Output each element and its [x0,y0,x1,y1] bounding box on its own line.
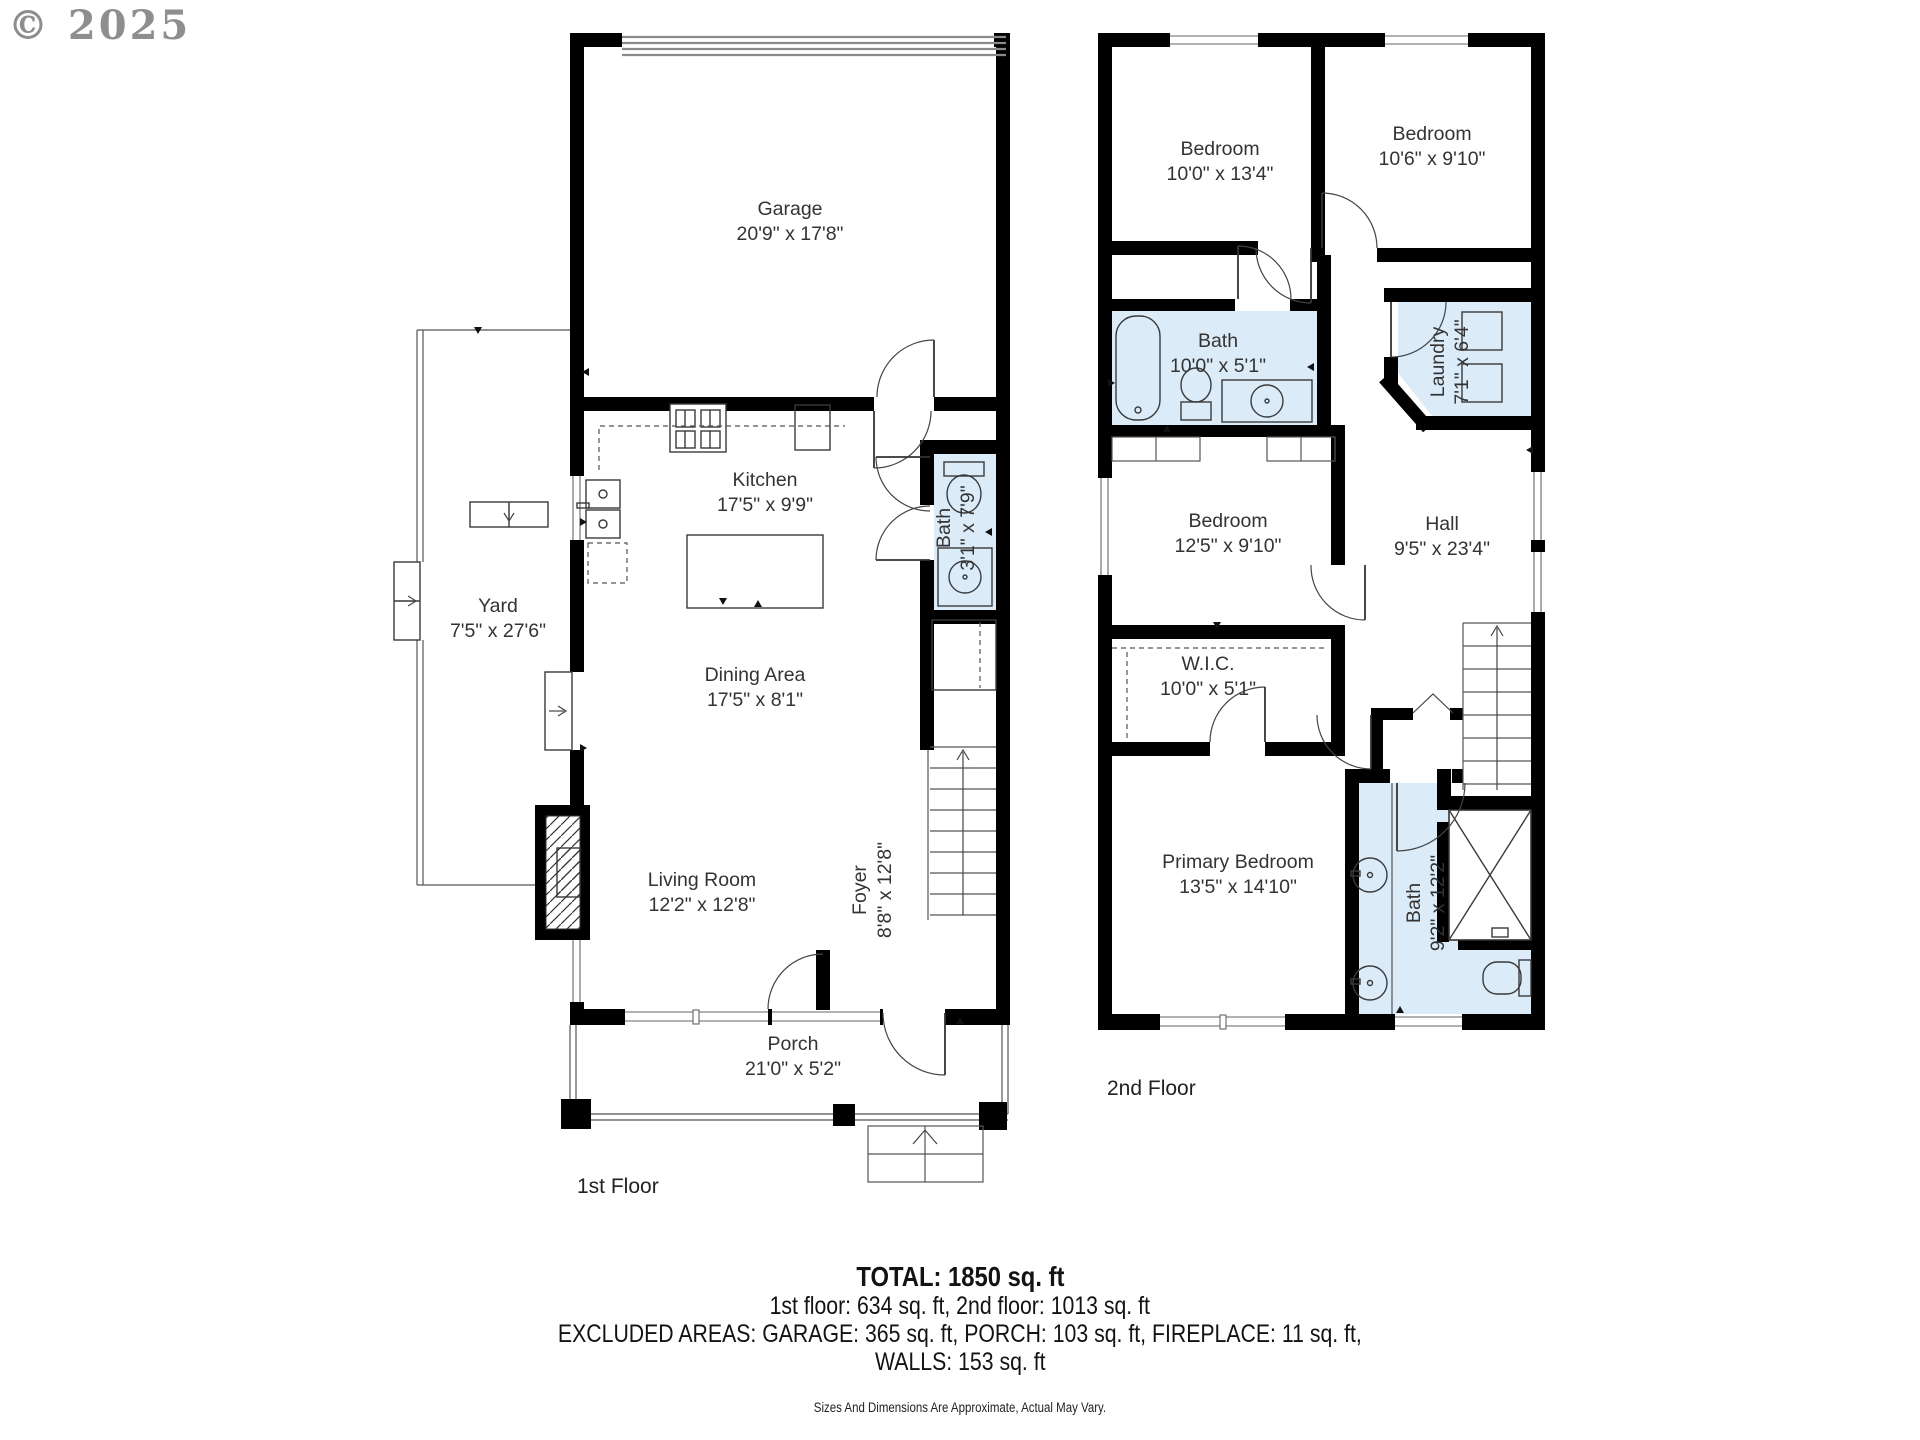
room-dims-foyer: 8'8" x 12'8" [874,842,896,938]
porch-post [833,1104,855,1126]
floorplan-1st-floor: Garage 20'9" x 17'8" Kitchen 17'5" x 9'9… [380,20,1030,1220]
total-area: TOTAL: 1850 sq. ft [856,1262,1064,1292]
room-dims-bath-primary: 9'2" x 12'2" [1427,855,1449,951]
room-dims-hall: 9'5" x 23'4" [1394,538,1490,560]
room-dims-porch: 21'0" x 5'2" [745,1058,841,1080]
walls-area: WALLS: 153 sq. ft [875,1348,1045,1376]
room-dims-dining: 17'5" x 8'1" [707,689,803,711]
front-steps [868,1126,983,1182]
room-label-dining: Dining Area [705,664,806,686]
room-dims-wic: 10'0" x 5'1" [1160,678,1256,700]
room-dims-laundry: 7'1" x 6'4" [1451,319,1473,404]
room-label-bedroom-tr: Bedroom [1392,123,1471,145]
room-dims-living: 12'2" x 12'8" [649,894,756,916]
room-dims-yard: 7'5" x 27'6" [450,620,546,642]
room-label-hall: Hall [1425,513,1459,535]
room-label-bath-primary: Bath [1403,883,1425,923]
stairs-1st [920,620,996,920]
copyright-watermark: © 2025 [8,2,191,49]
room-label-porch: Porch [768,1033,819,1055]
room-label-bath2: Bath [1198,330,1238,352]
floor1-caption: 1st Floor [577,1175,659,1198]
room-label-bedroom-tl: Bedroom [1180,138,1259,160]
room-labels-1st: Garage 20'9" x 17'8" Kitchen 17'5" x 9'9… [450,198,979,1198]
entry-closet-wall [816,950,830,1010]
kitchen-island [687,535,823,608]
room-label-yard: Yard [478,595,518,617]
floor2-caption: 2nd Floor [1107,1077,1196,1100]
garage-door [622,37,1006,55]
excluded-areas: EXCLUDED AREAS: GARAGE: 365 sq. ft, PORC… [558,1320,1362,1348]
porch-post [561,1099,591,1129]
disclaimer: Sizes And Dimensions Are Approximate, Ac… [814,1400,1106,1415]
stairs-2nd [1413,623,1531,790]
room-dims-bedroom-tr: 10'6" x 9'10" [1379,148,1486,170]
shower-icon [1449,810,1531,940]
floor-areas: 1st floor: 634 sq. ft, 2nd floor: 1013 s… [770,1292,1150,1320]
room-label-kitchen: Kitchen [732,469,797,491]
kitchen-stove [670,404,726,452]
room-label-laundry: Laundry [1427,327,1449,398]
room-label-foyer: Foyer [849,865,871,915]
room-label-bedroom-mid: Bedroom [1188,510,1267,532]
room-dims-garage: 20'9" x 17'8" [737,223,844,245]
room-dims-primary: 13'5" x 14'10" [1179,876,1297,898]
room-label-bath1: Bath [933,508,955,548]
room-dims-bath1: 3'1" x 7'9" [957,485,979,570]
room-dims-bedroom-tl: 10'0" x 13'4" [1167,163,1274,185]
floorplan-2nd-floor: Bedroom 10'0" x 13'4" Bedroom 10'6" x 9'… [1080,20,1560,1120]
room-dims-bedroom-mid: 12'5" x 9'10" [1175,535,1282,557]
room-label-primary: Primary Bedroom [1162,851,1314,873]
yard-structure [470,502,548,527]
area-summary: TOTAL: 1850 sq. ft 1st floor: 634 sq. ft… [0,1262,1920,1415]
room-label-wic: W.I.C. [1181,653,1234,675]
room-label-garage: Garage [757,198,822,220]
fireplace [535,805,590,940]
room-label-living: Living Room [648,869,756,891]
room-dims-kitchen: 17'5" x 9'9" [717,494,813,516]
floorplan-page: © 2025 [0,0,1920,1440]
attic-chevron [1413,694,1453,713]
room-dims-bath2: 10'0" x 5'1" [1170,355,1266,377]
